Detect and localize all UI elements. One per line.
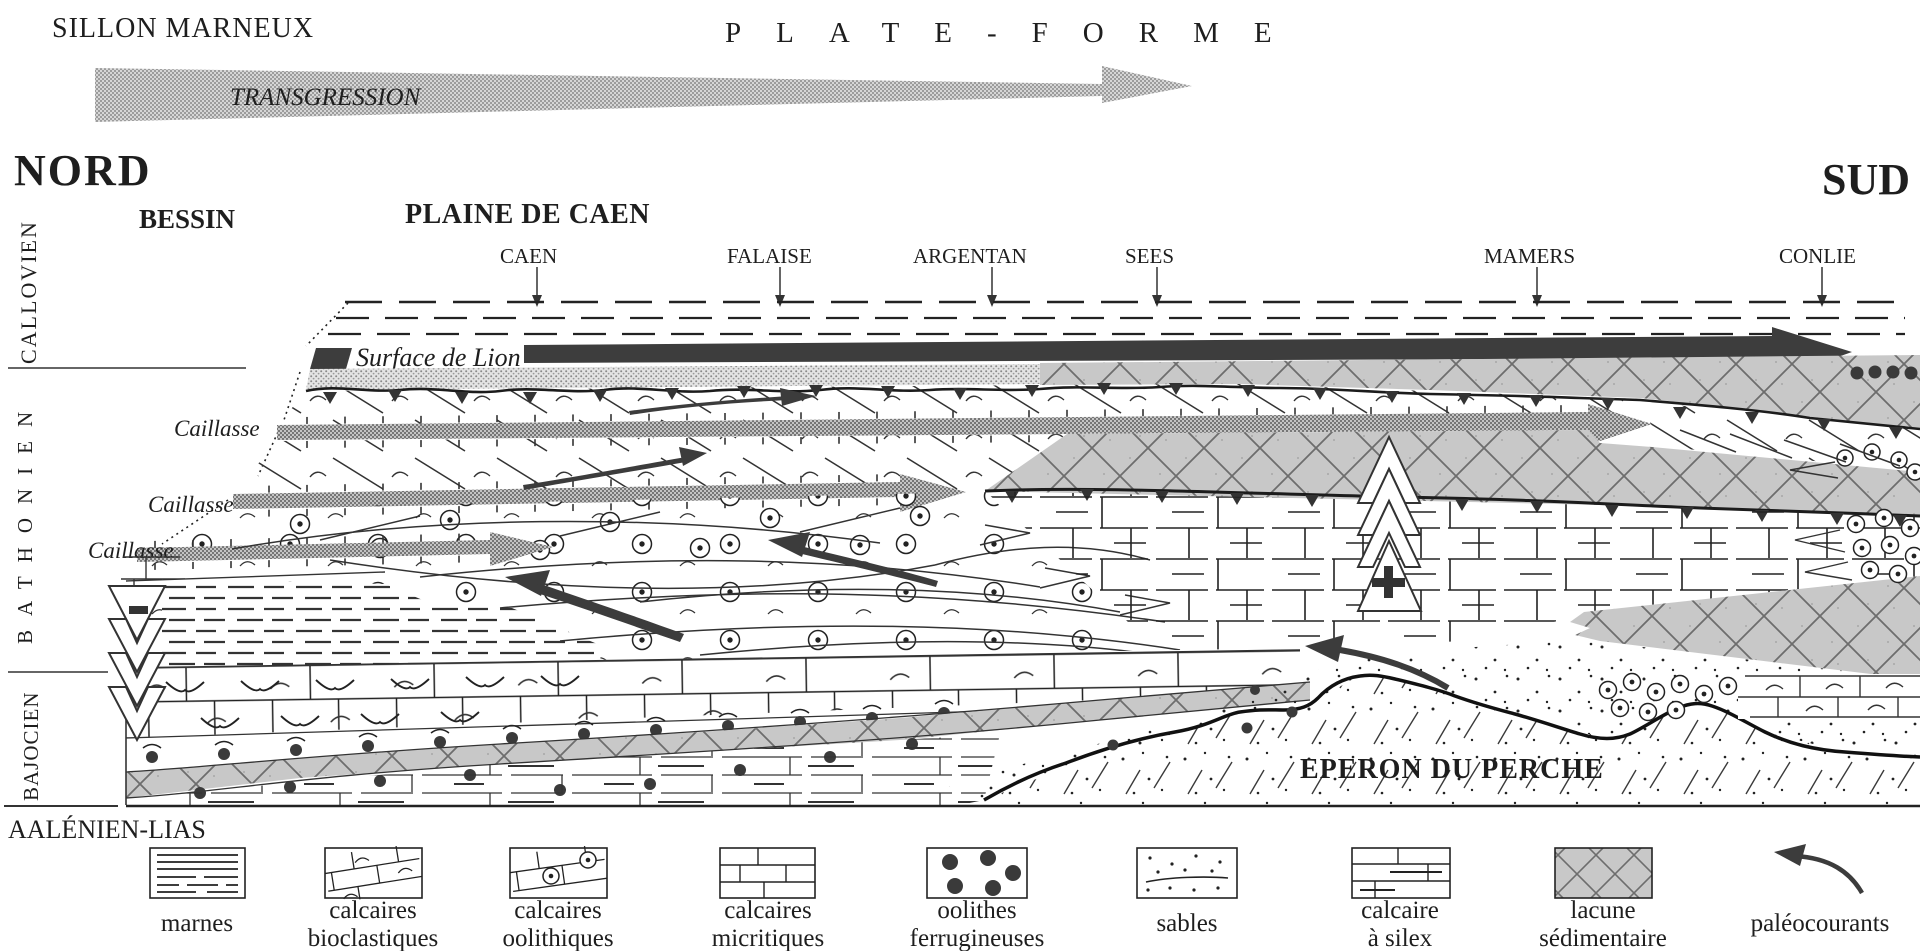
svg-text:bioclastiques: bioclastiques: [308, 925, 439, 951]
svg-text:MAMERS: MAMERS: [1484, 244, 1575, 268]
svg-text:BESSIN: BESSIN: [139, 204, 236, 234]
svg-text:Caillasse: Caillasse: [174, 416, 260, 441]
svg-text:calcaires: calcaires: [724, 897, 811, 924]
svg-text:micritiques: micritiques: [712, 925, 824, 951]
svg-text:CONLIE: CONLIE: [1779, 244, 1856, 268]
svg-text:AALÉNIEN-LIAS: AALÉNIEN-LIAS: [8, 815, 206, 844]
svg-text:oolithiques: oolithiques: [502, 925, 613, 951]
svg-text:SEES: SEES: [1125, 244, 1174, 268]
svg-text:PLATE-FORME: PLATE-FORME: [725, 17, 1307, 49]
svg-text:sables: sables: [1156, 910, 1217, 937]
svg-text:PLAINE DE CAEN: PLAINE DE CAEN: [405, 199, 650, 230]
svg-text:EPERON DU PERCHE: EPERON DU PERCHE: [1300, 754, 1604, 785]
svg-text:CAEN: CAEN: [500, 244, 557, 268]
svg-text:sédimentaire: sédimentaire: [1539, 925, 1667, 951]
svg-text:marnes: marnes: [161, 910, 233, 937]
svg-text:calcaires: calcaires: [514, 897, 601, 924]
svg-text:calcaires: calcaires: [329, 897, 416, 924]
svg-text:TRANSGRESSION: TRANSGRESSION: [230, 84, 422, 111]
svg-text:BATHONIEN: BATHONIEN: [13, 398, 37, 644]
svg-text:FALAISE: FALAISE: [727, 244, 812, 268]
svg-text:NORD: NORD: [14, 146, 152, 195]
svg-text:ferrugineuses: ferrugineuses: [910, 925, 1045, 951]
svg-text:calcaire: calcaire: [1361, 897, 1439, 924]
svg-text:SILLON MARNEUX: SILLON MARNEUX: [52, 13, 314, 44]
svg-text:BAJOCIEN: BAJOCIEN: [19, 691, 43, 801]
svg-text:lacune: lacune: [1570, 897, 1635, 924]
svg-text:Caillasse: Caillasse: [88, 538, 174, 563]
svg-text:CALLOVIEN: CALLOVIEN: [16, 220, 41, 364]
svg-text:SUD: SUD: [1822, 155, 1910, 204]
svg-text:paléocourants: paléocourants: [1751, 910, 1890, 937]
svg-text:ARGENTAN: ARGENTAN: [913, 244, 1027, 268]
svg-text:à silex: à silex: [1368, 925, 1433, 951]
svg-text:oolithes: oolithes: [937, 897, 1016, 924]
svg-text:Surface de Lion: Surface de Lion: [356, 343, 521, 372]
